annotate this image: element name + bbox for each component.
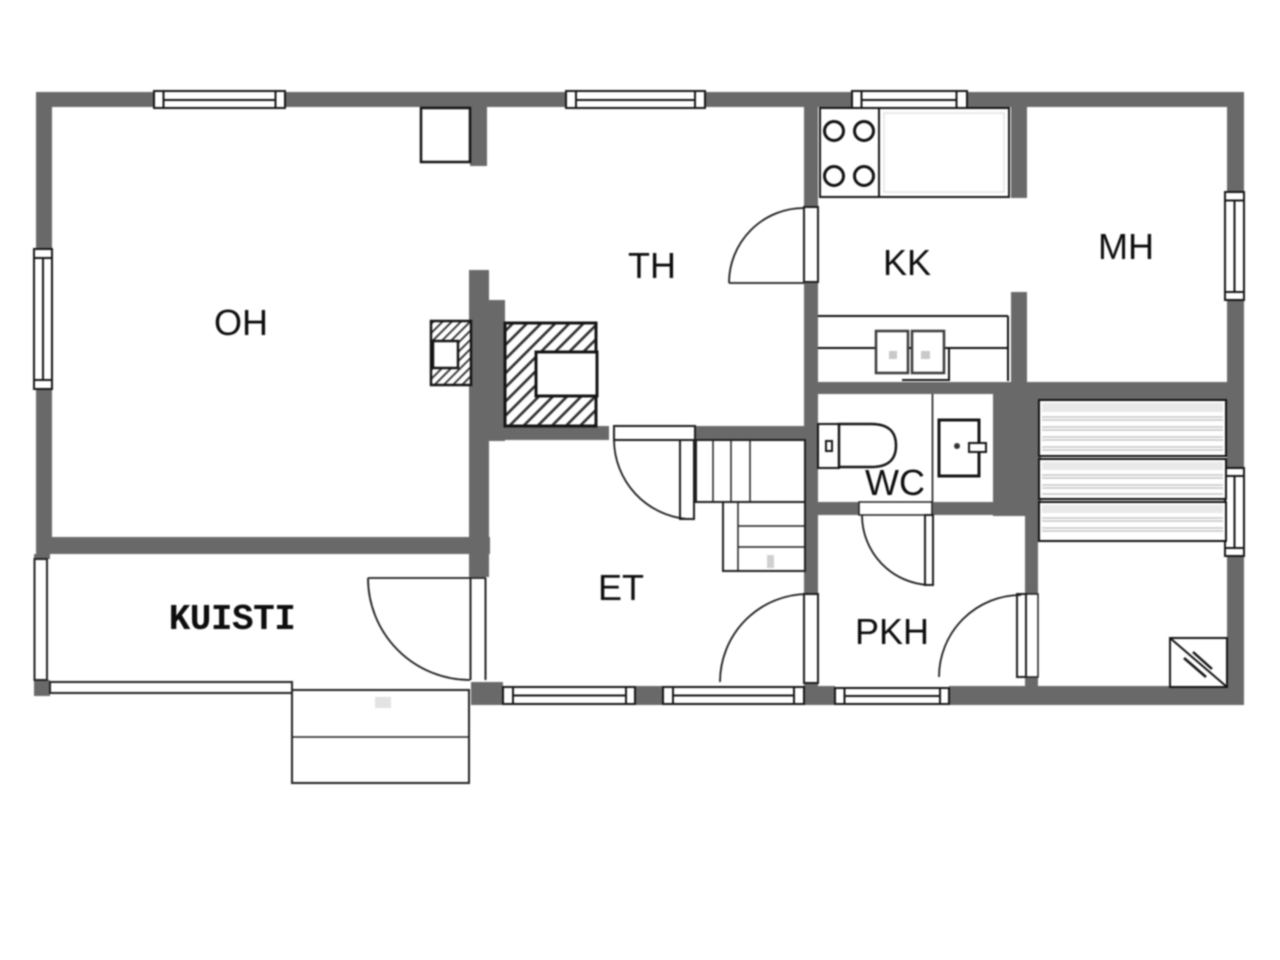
svg-text:MH: MH <box>1098 226 1154 267</box>
svg-text:KK: KK <box>883 242 931 283</box>
svg-text:OH: OH <box>214 302 268 343</box>
svg-text:ET: ET <box>598 567 644 608</box>
svg-text:KUISTI: KUISTI <box>169 599 296 640</box>
svg-text:PKH: PKH <box>855 611 929 652</box>
svg-text:TH: TH <box>628 245 676 286</box>
